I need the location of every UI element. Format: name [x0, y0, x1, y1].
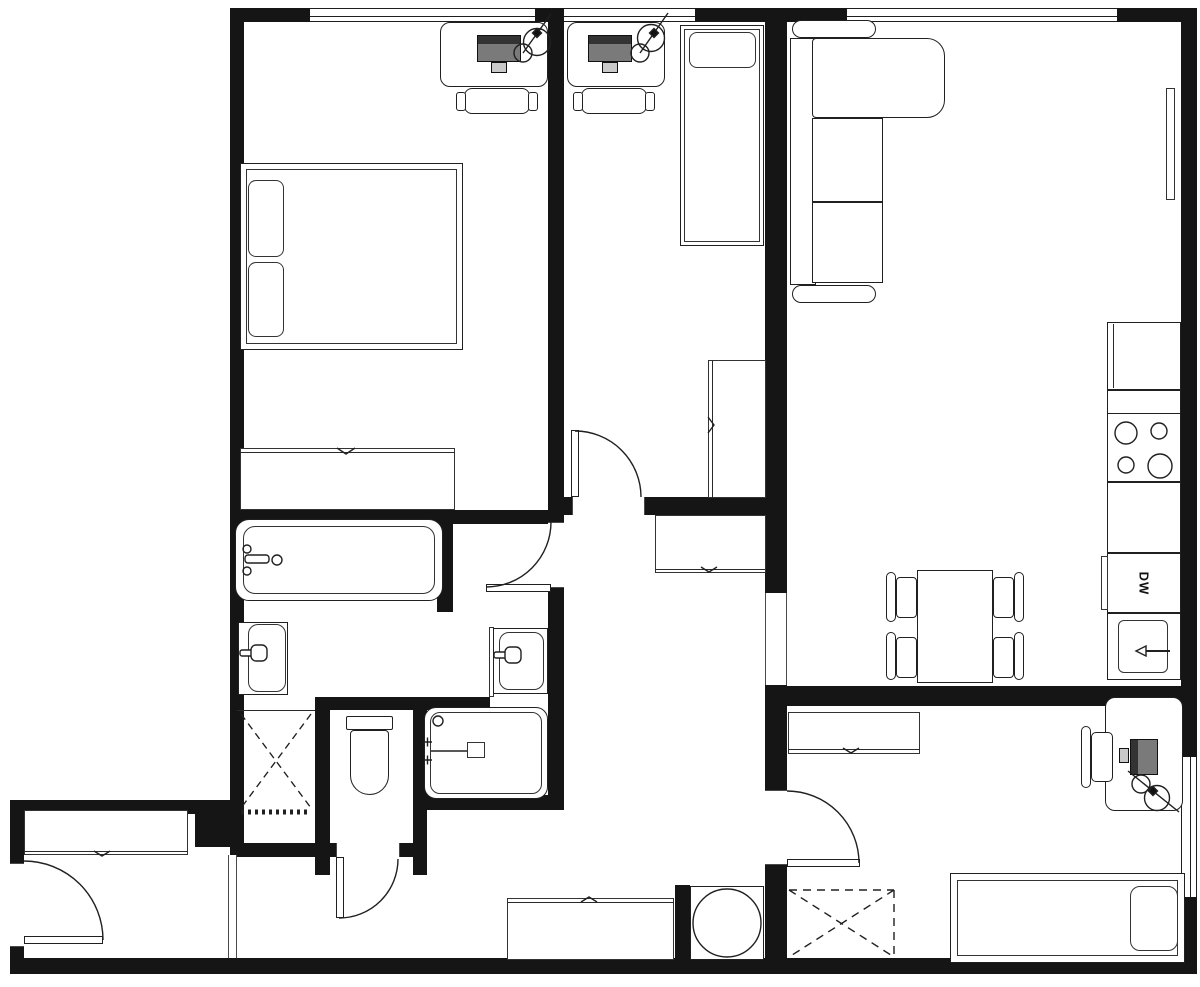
door-swing-icon: [486, 522, 551, 587]
wall: [195, 800, 235, 847]
floor-plan: DW: [0, 0, 1200, 987]
wall: [645, 497, 765, 515]
doorway-opening: [765, 593, 787, 685]
kitchen-counter: [1107, 390, 1181, 414]
door-leaf: [486, 584, 551, 592]
dining-table-icon: [917, 570, 993, 683]
chair-armrest: [573, 92, 583, 111]
wall: [675, 885, 690, 958]
chair-armrest: [645, 92, 655, 111]
stove-burners-icon: [1107, 413, 1181, 482]
dining-chair-seat: [896, 637, 917, 678]
bathtub-inner: [243, 526, 435, 594]
wardrobe-front-line: [788, 749, 920, 750]
monitor-stand: [491, 62, 507, 73]
sink-basin: [1118, 620, 1168, 673]
dining-chair-icon: [1014, 572, 1024, 622]
sofa-armrest: [792, 285, 876, 303]
fridge-icon: [1107, 322, 1181, 390]
window-icon: [847, 8, 1117, 22]
window-icon: [564, 8, 695, 22]
shower-head-square: [467, 742, 485, 758]
sofa-sectional-icon: [812, 38, 945, 118]
pillow: [248, 262, 284, 337]
computer-monitor-icon: [588, 35, 632, 62]
wardrobe-icon: [24, 810, 188, 855]
wall: [1181, 8, 1197, 757]
door-swing-icon: [787, 791, 859, 863]
washing-machine-icon: [690, 886, 764, 960]
doorway-opening: [10, 863, 24, 947]
doorway-opening: [765, 790, 787, 865]
computer-monitor-icon: [477, 35, 521, 62]
wardrobe-icon: [655, 515, 766, 573]
pillow: [248, 180, 284, 257]
door-swing-icon: [24, 861, 103, 940]
pillow: [689, 32, 756, 68]
wall: [765, 8, 787, 593]
sofa-cushion: [812, 202, 883, 283]
dining-chair-seat: [993, 637, 1014, 678]
dishwasher-label-text: DW: [1136, 571, 1151, 595]
door-leaf: [336, 857, 344, 918]
sofa-armrest: [792, 20, 876, 38]
toilet-bowl: [350, 730, 389, 795]
doorway-opening: [336, 843, 400, 857]
office-chair-icon: [464, 88, 530, 114]
tv-icon: [1166, 88, 1175, 200]
shower-inner: [430, 712, 542, 794]
dining-chair-icon: [1014, 632, 1024, 680]
closet-edge-line: [237, 710, 315, 711]
chair-armrest: [528, 92, 538, 111]
wardrobe-icon: [507, 898, 674, 960]
kitchen-counter: [1107, 482, 1181, 553]
wall: [765, 865, 787, 958]
chair-armrest: [456, 92, 466, 111]
wall: [230, 8, 244, 855]
dining-chair-seat: [896, 577, 917, 618]
pillow: [1130, 886, 1178, 951]
door-swing-icon: [575, 431, 641, 497]
monitor-stand: [602, 62, 618, 73]
computer-monitor-icon: [1130, 739, 1158, 775]
door-leaf: [24, 936, 103, 944]
dishwasher-label: DW: [1107, 553, 1181, 613]
toilet-icon: [346, 716, 393, 730]
wall: [548, 510, 564, 522]
office-chair-icon: [1081, 726, 1091, 788]
office-chair-icon: [581, 88, 647, 114]
dining-chair-seat: [993, 577, 1014, 618]
wall: [10, 947, 24, 960]
wardrobe-front-line: [240, 452, 455, 453]
wardrobe-front-line: [655, 569, 766, 570]
fridge-door-line: [1113, 324, 1114, 388]
wardrobe-icon: [788, 712, 920, 754]
chair-seat: [1091, 732, 1113, 782]
wall: [400, 843, 427, 857]
washbasin-bowl: [248, 624, 286, 692]
wall: [230, 843, 336, 857]
wardrobe-icon: [240, 448, 455, 510]
doorway-opening: [572, 497, 645, 515]
washbasin-bowl: [499, 632, 544, 690]
wardrobe-front-line: [712, 360, 713, 498]
window-icon: [310, 8, 535, 22]
wall: [564, 497, 572, 515]
dining-chair-icon: [886, 632, 896, 680]
entry-hall-threshold: [228, 855, 237, 958]
door-leaf: [571, 430, 579, 497]
door-swing-icon: [339, 859, 398, 918]
closet-cross-icon: [241, 714, 311, 808]
wall: [548, 588, 564, 810]
door-leaf: [787, 859, 860, 867]
wardrobe-front-line: [507, 902, 674, 903]
dining-chair-icon: [886, 572, 896, 622]
wardrobe-icon: [708, 360, 766, 498]
sofa-cushion: [812, 118, 883, 202]
wall: [765, 685, 787, 790]
monitor-stand: [1119, 748, 1129, 763]
closet-cross-icon: [789, 890, 894, 957]
wall: [548, 8, 564, 512]
wardrobe-front-line: [24, 851, 188, 852]
doorway-opening: [548, 522, 564, 588]
